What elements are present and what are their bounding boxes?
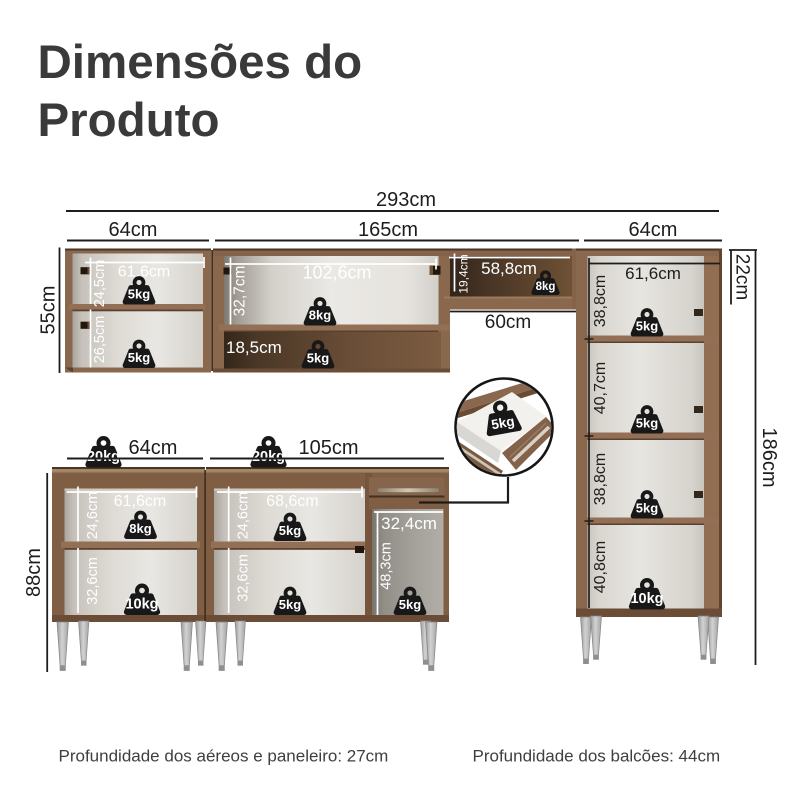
svg-text:88cm: 88cm [23,548,45,597]
svg-text:64cm: 64cm [629,219,678,241]
svg-text:20kg: 20kg [252,449,285,465]
svg-text:5kg: 5kg [279,597,301,612]
svg-text:8kg: 8kg [536,281,556,293]
svg-text:165cm: 165cm [358,219,418,241]
svg-text:8kg: 8kg [309,308,331,323]
svg-text:5kg: 5kg [636,319,658,334]
svg-text:60cm: 60cm [485,312,531,333]
svg-text:24,6cm: 24,6cm [85,492,101,540]
svg-text:22cm: 22cm [732,254,753,300]
svg-text:Profundidade dos balcões: 44cm: Profundidade dos balcões: 44cm [473,747,721,766]
svg-text:32,6cm: 32,6cm [236,554,252,602]
svg-text:102,6cm: 102,6cm [302,263,371,283]
svg-text:61,6cm: 61,6cm [114,493,166,510]
svg-text:5kg: 5kg [399,597,421,612]
svg-text:Profundidade dos aéreos e pane: Profundidade dos aéreos e paneleiro: 27c… [59,747,389,766]
svg-text:61,6cm: 61,6cm [118,264,170,281]
svg-text:40,7cm: 40,7cm [592,362,609,414]
svg-text:18,5cm: 18,5cm [226,338,282,357]
svg-text:293cm: 293cm [376,189,436,211]
svg-text:5kg: 5kg [128,350,150,365]
svg-text:26,5cm: 26,5cm [92,316,108,364]
svg-text:24,5cm: 24,5cm [92,260,108,308]
svg-text:186cm: 186cm [758,427,780,487]
svg-text:5kg: 5kg [636,416,658,431]
svg-text:19,4cm: 19,4cm [457,254,471,293]
svg-text:58,8cm: 58,8cm [481,259,537,278]
svg-text:38,8cm: 38,8cm [592,275,609,327]
svg-text:10kg: 10kg [125,597,158,613]
svg-text:61,6cm: 61,6cm [625,264,681,283]
svg-text:5kg: 5kg [636,501,658,516]
svg-text:10kg: 10kg [630,591,663,607]
svg-text:38,8cm: 38,8cm [592,453,609,505]
svg-text:20kg: 20kg [87,449,120,465]
svg-text:5kg: 5kg [128,287,150,302]
svg-text:105cm: 105cm [298,437,358,459]
svg-text:64cm: 64cm [129,437,178,459]
svg-text:40,8cm: 40,8cm [592,541,609,593]
svg-text:32,7cm: 32,7cm [232,266,249,317]
svg-text:48,3cm: 48,3cm [379,542,395,590]
svg-text:68,6cm: 68,6cm [266,493,318,510]
svg-text:Dimensões do: Dimensões do [38,36,363,89]
svg-text:32,4cm: 32,4cm [381,514,437,533]
svg-text:5kg: 5kg [307,351,329,366]
svg-text:Produto: Produto [38,94,220,147]
svg-text:64cm: 64cm [109,219,158,241]
svg-text:24,6cm: 24,6cm [236,492,252,540]
svg-text:5kg: 5kg [279,523,301,538]
svg-text:55cm: 55cm [38,286,60,335]
svg-text:8kg: 8kg [129,521,151,536]
svg-text:32,6cm: 32,6cm [85,557,101,605]
